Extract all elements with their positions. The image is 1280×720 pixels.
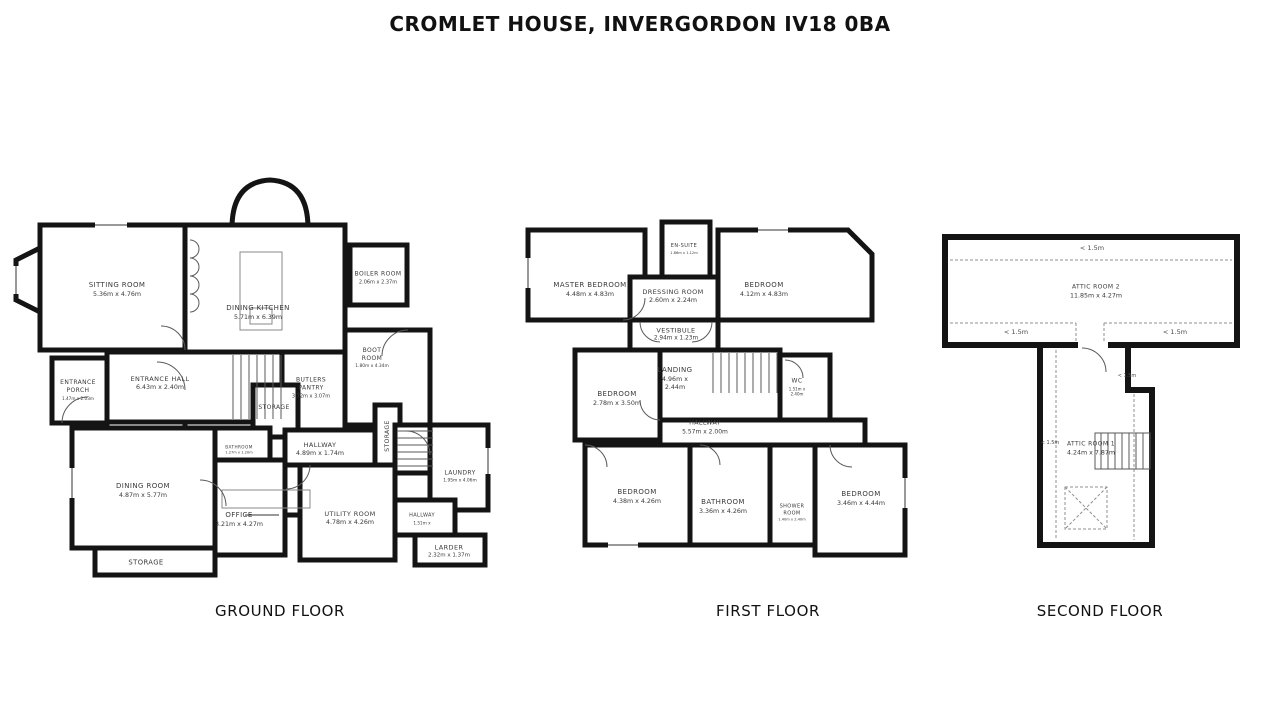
- room-label-entrance-porch: ENTRANCE PORCH 1.47m x 2.03m: [53, 379, 103, 401]
- floorplan-page: CROMLET HOUSE, INVERGORDON IV18 0BA SITT…: [0, 0, 1280, 720]
- room-label-en-suite: EN-SUITE 1.86m x 1.12m: [670, 243, 697, 255]
- room-label-dressing-room: DRESSING ROOM 2.60m x 2.24m: [642, 288, 703, 306]
- room-label-wc: WC 1.51m x 2.40m: [782, 377, 812, 396]
- room-label-boiler-room: BOILER ROOM 2.06m x 2.37m: [352, 270, 404, 285]
- caption-first-floor: FIRST FLOOR: [716, 602, 820, 620]
- room-label-bedroom-1: BEDROOM 4.12m x 4.83m: [740, 281, 788, 299]
- room-label-storage-side: STORAGE: [384, 420, 392, 451]
- room-label-bathroom-ground: BATHROOM 1.27m x 1.20m: [225, 444, 252, 455]
- head-height-label-attic1-left: < 1.5m: [1041, 440, 1060, 446]
- room-label-sitting-room: SITTING ROOM 5.36m x 4.76m: [89, 281, 146, 299]
- room-label-hallway-ground: HALLWAY 4.89m x 1.74m: [296, 441, 344, 459]
- room-label-hallway-small: HALLWAY 1.51m x: [409, 513, 435, 526]
- room-label-laundry: LAUNDRY 1.95m x 4.06m: [443, 470, 477, 485]
- room-label-butlers-pantry: BUTLERS PANTRY 3.72m x 3.07m: [290, 376, 332, 399]
- head-height-label-bottom-left: < 1.5m: [1004, 328, 1028, 336]
- room-label-bedroom-2: BEDROOM 2.78m x 3.50m: [593, 390, 641, 408]
- caption-ground-floor: GROUND FLOOR: [215, 602, 345, 620]
- room-label-dining-kitchen: DINING KITCHEN 5.71m x 6.39m: [226, 304, 290, 322]
- room-label-entrance-hall: ENTRANCE HALL 6.43m x 2.40m: [131, 375, 190, 393]
- head-height-label-bottom-right: < 1.5m: [1163, 328, 1187, 336]
- room-label-bathroom-first: BATHROOM 3.36m x 4.26m: [699, 498, 747, 516]
- room-label-utility-room: UTILITY ROOM 4.78m x 4.26m: [324, 510, 375, 528]
- room-label-shower-room: SHOWER ROOM 1.40m x 2.40m: [775, 504, 809, 523]
- room-label-storage-bottom: STORAGE: [128, 559, 163, 568]
- room-label-vestibule: VESTIBULE 2.94m x 1.23m: [654, 327, 698, 344]
- room-label-hallway-first: HALLWAY 5.57m x 2.00m: [682, 420, 728, 437]
- caption-second-floor: SECOND FLOOR: [1037, 602, 1164, 620]
- room-label-bedroom-4: BEDROOM 3.46m x 4.44m: [837, 490, 885, 508]
- room-label-attic-room-1: ATTIC ROOM 1 4.24m x 7.87m: [1067, 441, 1115, 458]
- room-label-storage-mid: STORAGE: [258, 404, 289, 412]
- page-title: CROMLET HOUSE, INVERGORDON IV18 0BA: [0, 12, 1280, 36]
- room-label-boot-room: BOOT ROOM 1.80m x 4.34m: [354, 347, 390, 369]
- room-label-office: OFFICE 3.21m x 4.27m: [215, 511, 263, 529]
- head-height-label-top: < 1.5m: [1080, 244, 1104, 252]
- head-height-label-attic1-right: < 1.5m: [1118, 373, 1137, 379]
- room-label-attic-room-2: ATTIC ROOM 2 11.85m x 4.27m: [1070, 284, 1122, 301]
- room-label-larder: LARDER 2.32m x 1.37m: [428, 544, 470, 561]
- room-label-master-bedroom: MASTER BEDROOM 4.48m x 4.83m: [553, 281, 626, 299]
- room-label-landing: LANDING 4.96m x 2.44m: [652, 366, 698, 392]
- room-label-bedroom-3: BEDROOM 4.38m x 4.26m: [613, 488, 661, 506]
- room-label-dining-room: DINING ROOM 4.87m x 5.77m: [116, 482, 170, 500]
